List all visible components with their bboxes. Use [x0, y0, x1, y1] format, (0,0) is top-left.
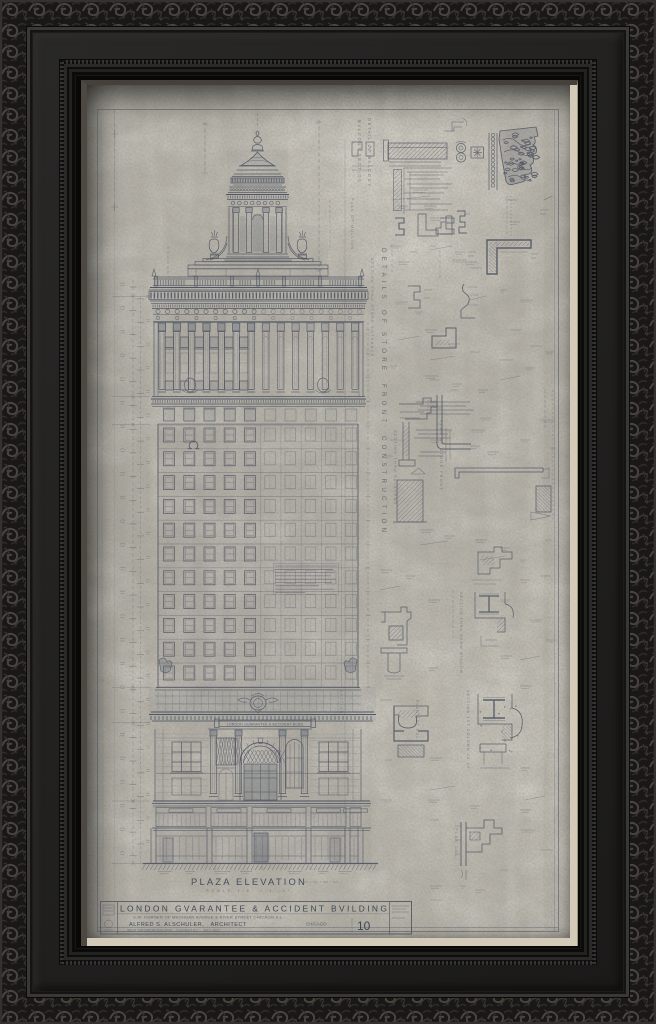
svg-text:SCALE 1/8” = 1’-0”: SCALE 1/8” = 1’-0”	[206, 889, 292, 893]
svg-text:LONDON GVARANTEE & ACCIDENT BV: LONDON GVARANTEE & ACCIDENT BVILDING	[120, 904, 387, 914]
svg-text:SECTION THRU STORE ENTRANCE: SECTION THRU STORE ENTRANCE	[370, 258, 374, 358]
svg-text:DETAILS: DETAILS	[380, 248, 387, 303]
svg-text:S.W. CORNER OF MICHIGAN AVENUE: S.W. CORNER OF MICHIGAN AVENUE & RIVER S…	[133, 915, 284, 920]
svg-text:10: 10	[357, 919, 371, 933]
svg-text:PLAN OF STORE FRONT: PLAN OF STORE FRONT	[439, 420, 443, 491]
svg-text:LONDON GUARANTEE & ACCIDENT BL: LONDON GUARANTEE & ACCIDENT BLDG	[227, 723, 304, 727]
svg-text:PLAN OF MULLION: PLAN OF MULLION	[350, 198, 354, 250]
svg-text:STORE: STORE	[380, 332, 387, 374]
svg-text:OF: OF	[380, 310, 387, 327]
svg-text:ALFRED S. ALSCHULER, ARCHITE: ALFRED S. ALSCHULER, ARCHITECT	[129, 922, 247, 928]
svg-text:PLAN 1ST COL.: PLAN 1ST COL.	[415, 700, 419, 742]
svg-text:SECTION: SECTION	[339, 690, 343, 714]
svg-text:CONSTRUCTION: CONSTRUCTION	[380, 436, 387, 536]
svg-text:FRONT: FRONT	[380, 384, 387, 426]
svg-text:SECTION THRU BULKHEAD: SECTION THRU BULKHEAD	[393, 430, 397, 505]
svg-text:SECTION THRU SHOW WINDOW: SECTION THRU SHOW WINDOW	[459, 592, 463, 674]
svg-text:CHICAGO: CHICAGO	[306, 922, 327, 927]
svg-text:PLAN COL.: PLAN COL.	[454, 828, 458, 860]
svg-text:WEST SUPERIOR BUILDING CHIC: WEST SUPERIOR BUILDING CHICAGO ILL JULY …	[127, 929, 220, 933]
svg-text:SECTION 1ST COLUMN 28-34: SECTION 1ST COLUMN 28-34	[466, 690, 470, 769]
svg-text:PLAZA ELEVATION: PLAZA ELEVATION	[191, 876, 307, 887]
